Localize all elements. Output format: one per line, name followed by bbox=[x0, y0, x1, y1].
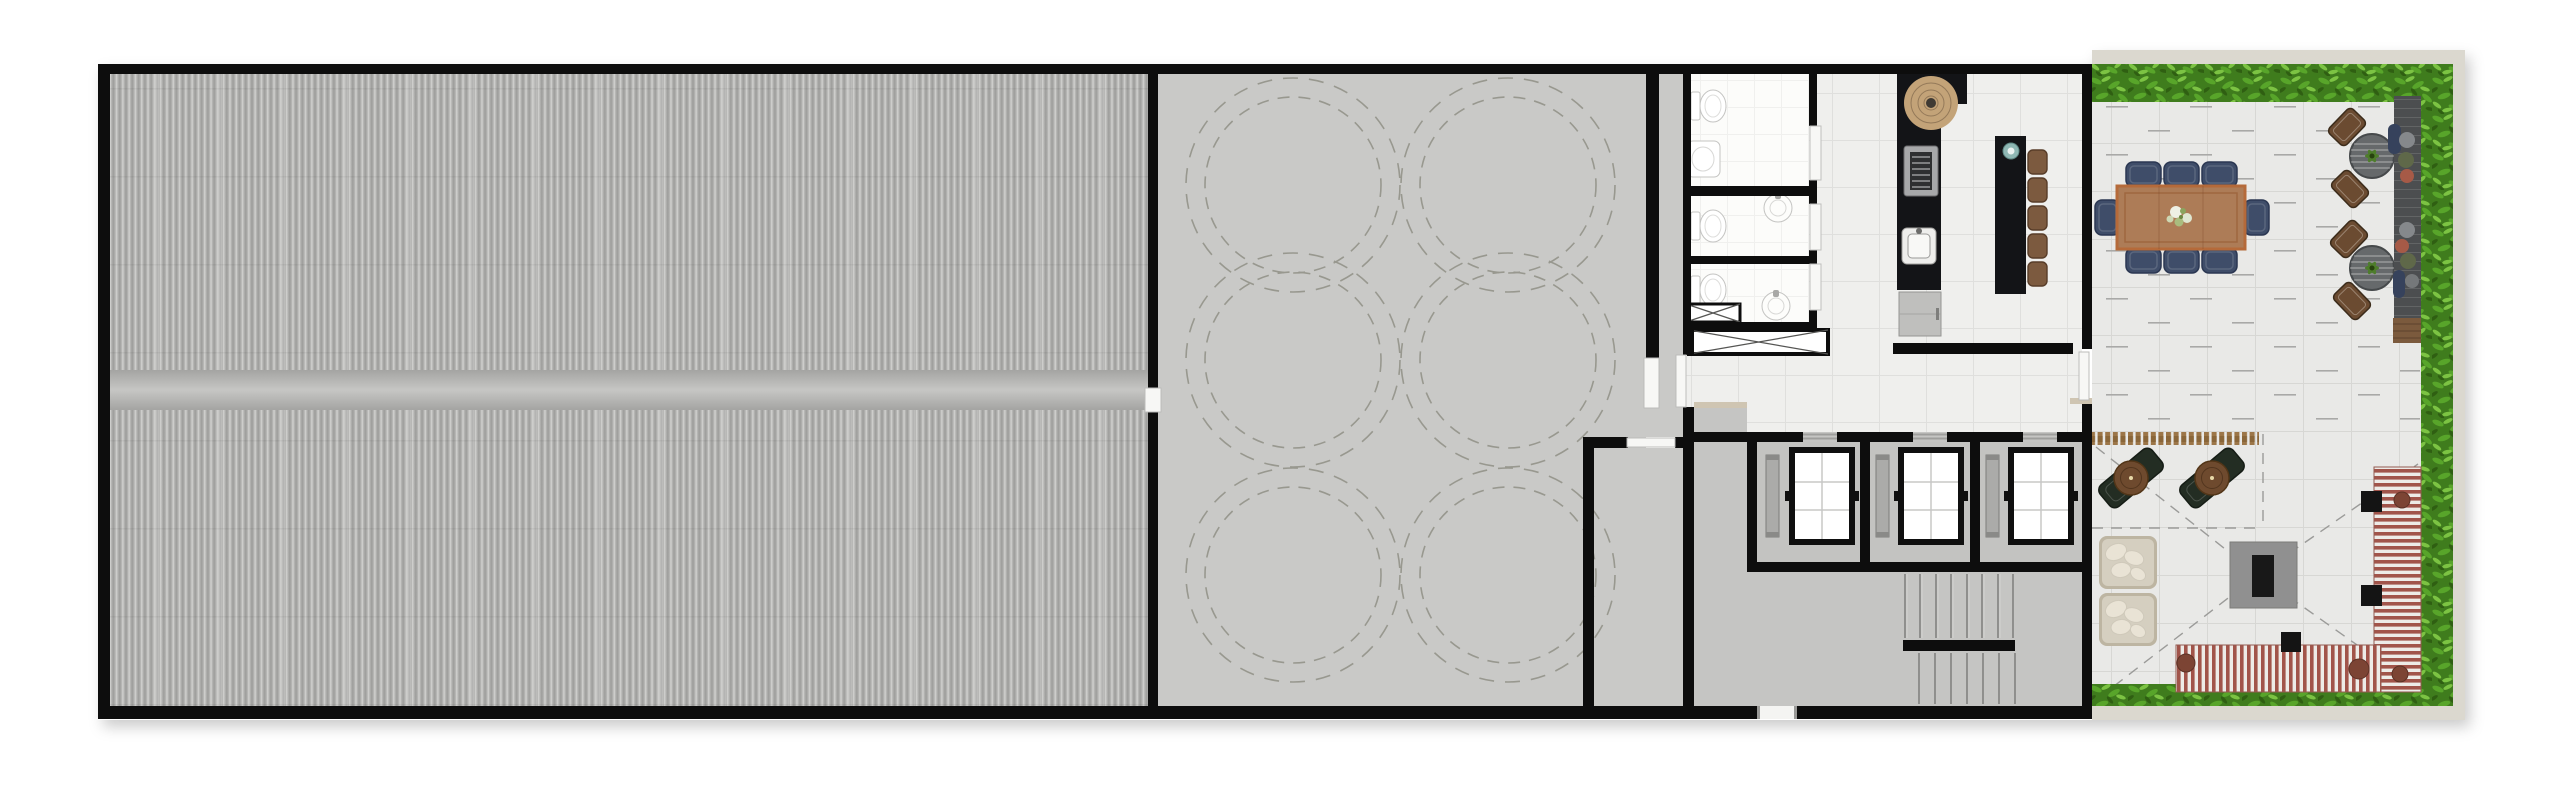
door-chase-corridor bbox=[1676, 355, 1686, 407]
sink-1 bbox=[1687, 141, 1720, 177]
zone-elevators bbox=[1757, 442, 2082, 562]
wall-roof-slab-upper bbox=[1148, 64, 1158, 388]
slat-bench bbox=[2091, 432, 2259, 445]
wall-top bbox=[98, 64, 2092, 74]
duct-shaft-small bbox=[1686, 304, 1740, 322]
door-slab-chase bbox=[1644, 358, 1659, 408]
rattan-pendant bbox=[1904, 76, 1958, 130]
wall-right-lower bbox=[2082, 403, 2092, 719]
floor-plan-drawing bbox=[0, 0, 2560, 810]
terrace-border-bottom bbox=[2092, 706, 2465, 720]
kitchen-sink bbox=[1902, 228, 1936, 264]
roof-walkway-band bbox=[110, 370, 1148, 410]
terrace-border-right bbox=[2453, 50, 2465, 720]
elevator-cab-3 bbox=[2004, 447, 2078, 545]
wall-service-room bbox=[1583, 437, 1594, 706]
door-stall-2 bbox=[1810, 204, 1821, 250]
kitchen-cabinet bbox=[1899, 292, 1941, 336]
wall-slab-core bbox=[1646, 64, 1659, 358]
elevator-cab-1 bbox=[1785, 447, 1859, 545]
door-bottom-entry bbox=[1757, 706, 1797, 719]
hedge-right bbox=[2421, 64, 2453, 706]
bar-stools bbox=[2028, 150, 2047, 286]
zone-slab-area bbox=[1158, 74, 1683, 706]
terrace-border-top bbox=[2092, 50, 2465, 64]
toilet-1 bbox=[1691, 90, 1726, 122]
zone-restrooms bbox=[1686, 74, 1809, 322]
service-room-floor bbox=[1594, 448, 1683, 706]
elevator-cab-2 bbox=[1894, 447, 1968, 545]
door-roof-slab bbox=[1145, 388, 1161, 412]
stair-landing bbox=[1903, 640, 2015, 651]
toilet-3 bbox=[1691, 274, 1726, 306]
wall-roof-slab-lower bbox=[1148, 412, 1158, 706]
zone-terrace bbox=[2091, 50, 2465, 720]
grill bbox=[1904, 146, 1938, 196]
toilet-2 bbox=[1691, 210, 1726, 242]
duct-shaft-large bbox=[1689, 330, 1828, 354]
bar-island bbox=[1995, 136, 2026, 294]
door-stall-3 bbox=[1810, 264, 1821, 310]
door-service-room bbox=[1627, 438, 1675, 447]
lobby-threshold bbox=[1694, 402, 1747, 408]
zone-metal-roof bbox=[110, 74, 1148, 706]
wall-right-upper bbox=[2082, 64, 2092, 349]
island-vase bbox=[2003, 143, 2019, 159]
wall-left bbox=[98, 64, 110, 719]
door-core-terrace bbox=[2079, 352, 2089, 400]
daybed-2 bbox=[2099, 593, 2157, 646]
floor-plan-page bbox=[0, 0, 2560, 810]
fire-pit bbox=[2230, 542, 2297, 608]
door-stall-1 bbox=[1810, 126, 1821, 180]
wall-lobby-west bbox=[1683, 407, 1694, 706]
wall-kitchen-south bbox=[1893, 343, 2073, 354]
daybed-1 bbox=[2099, 536, 2157, 589]
